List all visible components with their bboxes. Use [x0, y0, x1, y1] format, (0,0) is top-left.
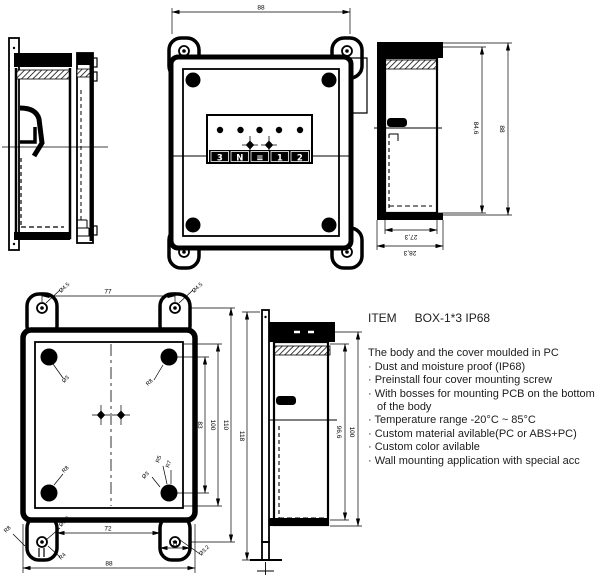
terminal-label-n: N	[236, 154, 243, 164]
dim-ear-width: 11	[172, 541, 179, 548]
dim-depth-inner: 27,3	[404, 233, 417, 240]
side-view-linework	[374, 42, 512, 250]
side-section-linework	[2, 38, 108, 250]
feature-item: · Custom color avilable	[368, 441, 600, 454]
dim-profile-overall: 118	[238, 431, 245, 442]
feature-item: · Custom material avilable(PC or ABS+PC)	[368, 428, 600, 441]
feature-item: · With bosses for mounting PCB on the bo…	[368, 388, 600, 415]
dim-depth-outer: 28,3	[403, 249, 416, 256]
spec-panel: ITEMBOX-1*3 IP68 The body and the cover …	[368, 312, 600, 468]
label-mount-hole-right: Ø3.2	[198, 545, 211, 558]
spec-intro: The body and the cover moulded in PC	[368, 347, 600, 360]
feature-list: · Dust and moisture proof (IP68) · Prein…	[368, 361, 600, 468]
dim-back-inner-height: 83	[196, 421, 203, 429]
feature-item: · Preinstall four cover mounting screw	[368, 374, 600, 387]
feature-item: · Dust and moisture proof (IP68)	[368, 361, 600, 374]
label-radius-r4: R4	[58, 552, 67, 561]
terminal-label-ground: ≡	[256, 154, 263, 164]
dim-profile-outer: 100	[348, 427, 355, 438]
datasheet-page: 88 3 N ≡ 1 2	[0, 0, 600, 583]
profile-view-dimensioned: 118 96,6 100	[236, 290, 363, 583]
feature-item: · Temperature range -20°C ~ 85°C	[368, 414, 600, 427]
back-view-dimensioned: 77 Ø4.5 Ø4.5 83 100 110 72 11 88 R8 Ø3.2…	[3, 286, 240, 583]
terminal-label-1: 1	[277, 154, 283, 164]
dim-hole-dia-left: Ø4.5	[58, 282, 71, 295]
top-view: 88 3 N ≡ 1 2	[163, 4, 368, 269]
terminal-label-2: 2	[297, 154, 303, 164]
dim-back-outer-height: 110	[222, 420, 229, 431]
feature-item: · Wall mounting application with special…	[368, 455, 600, 468]
profile-view-linework	[242, 310, 362, 575]
top-view-linework	[169, 8, 367, 268]
dim-height-outer: 88	[498, 125, 505, 133]
terminal-label-3: 3	[217, 154, 223, 164]
dim-hole-span: 77	[104, 289, 112, 296]
back-view-linework	[13, 290, 235, 573]
side-section-view	[2, 30, 114, 260]
item-label: ITEM	[368, 311, 397, 325]
item-title: ITEMBOX-1*3 IP68	[368, 312, 600, 325]
dim-height-inner: 84,6	[472, 122, 479, 135]
item-value: BOX-1*3 IP68	[415, 311, 490, 325]
dim-back-mid-height: 100	[209, 420, 216, 431]
dim-ear-span: 72	[104, 526, 112, 533]
dim-top-width: 88	[257, 5, 265, 12]
dim-overall-width: 88	[105, 561, 113, 568]
dim-profile-inner: 96,6	[335, 426, 342, 439]
side-view-dimensioned: 27,3 28,3 84,6 88	[372, 28, 522, 262]
label-corner-radius-left: R8	[3, 525, 12, 534]
dim-hole-dia-right: Ø4.5	[191, 282, 204, 295]
